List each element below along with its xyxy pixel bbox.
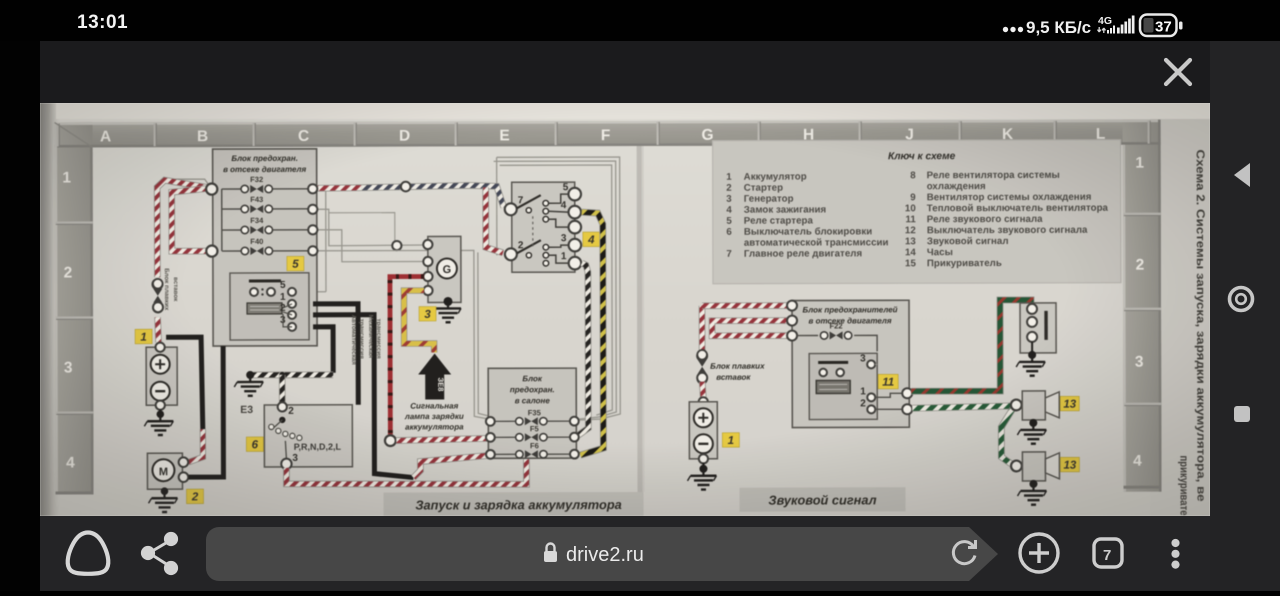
svg-text:7: 7	[1103, 547, 1111, 564]
svg-text:drive2.ru: drive2.ru	[566, 544, 644, 566]
svg-text:9,5 КБ/с: 9,5 КБ/с	[1026, 18, 1091, 37]
svg-text:37: 37	[1155, 19, 1172, 36]
svg-text:4G: 4G	[1098, 15, 1112, 27]
